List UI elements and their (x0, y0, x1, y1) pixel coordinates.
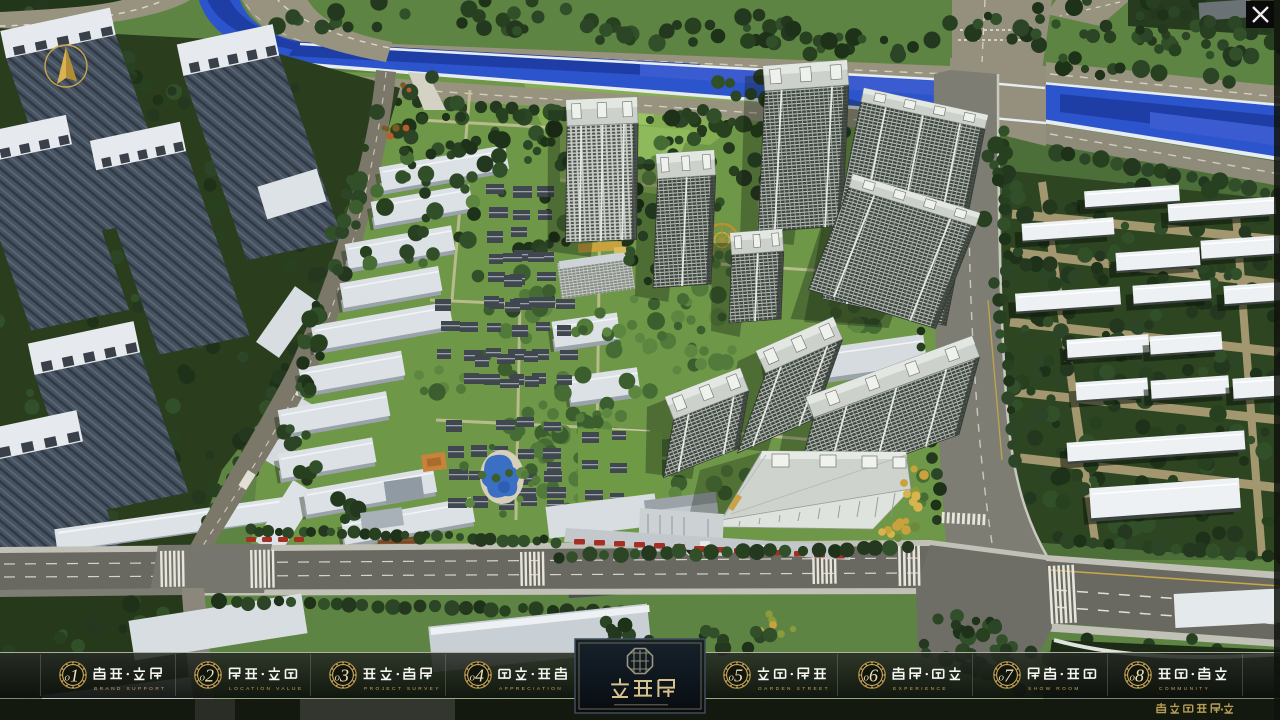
svg-text:PROJECT SURVEY: PROJECT SURVEY (364, 686, 441, 692)
svg-text:5: 5 (734, 666, 743, 686)
svg-text:SHOW ROOM: SHOW ROOM (1028, 686, 1081, 692)
svg-text:2: 2 (205, 666, 214, 686)
svg-text:6: 6 (869, 666, 878, 686)
svg-text:8: 8 (1135, 666, 1144, 686)
svg-text:7: 7 (1004, 666, 1014, 686)
svg-text:APPRECIATION: APPRECIATION (499, 686, 563, 692)
svg-text:GARDEN STREET: GARDEN STREET (758, 686, 830, 692)
svg-text:1: 1 (70, 666, 79, 686)
svg-text:4: 4 (475, 666, 484, 686)
svg-text:3: 3 (339, 666, 349, 686)
svg-text:EXPERIENCE: EXPERIENCE (893, 686, 948, 692)
svg-text:COMMUNITY: COMMUNITY (1159, 686, 1210, 692)
svg-text:BRAND SUPPORT: BRAND SUPPORT (94, 686, 166, 692)
svg-text:LOCATION VALUE: LOCATION VALUE (229, 686, 303, 692)
